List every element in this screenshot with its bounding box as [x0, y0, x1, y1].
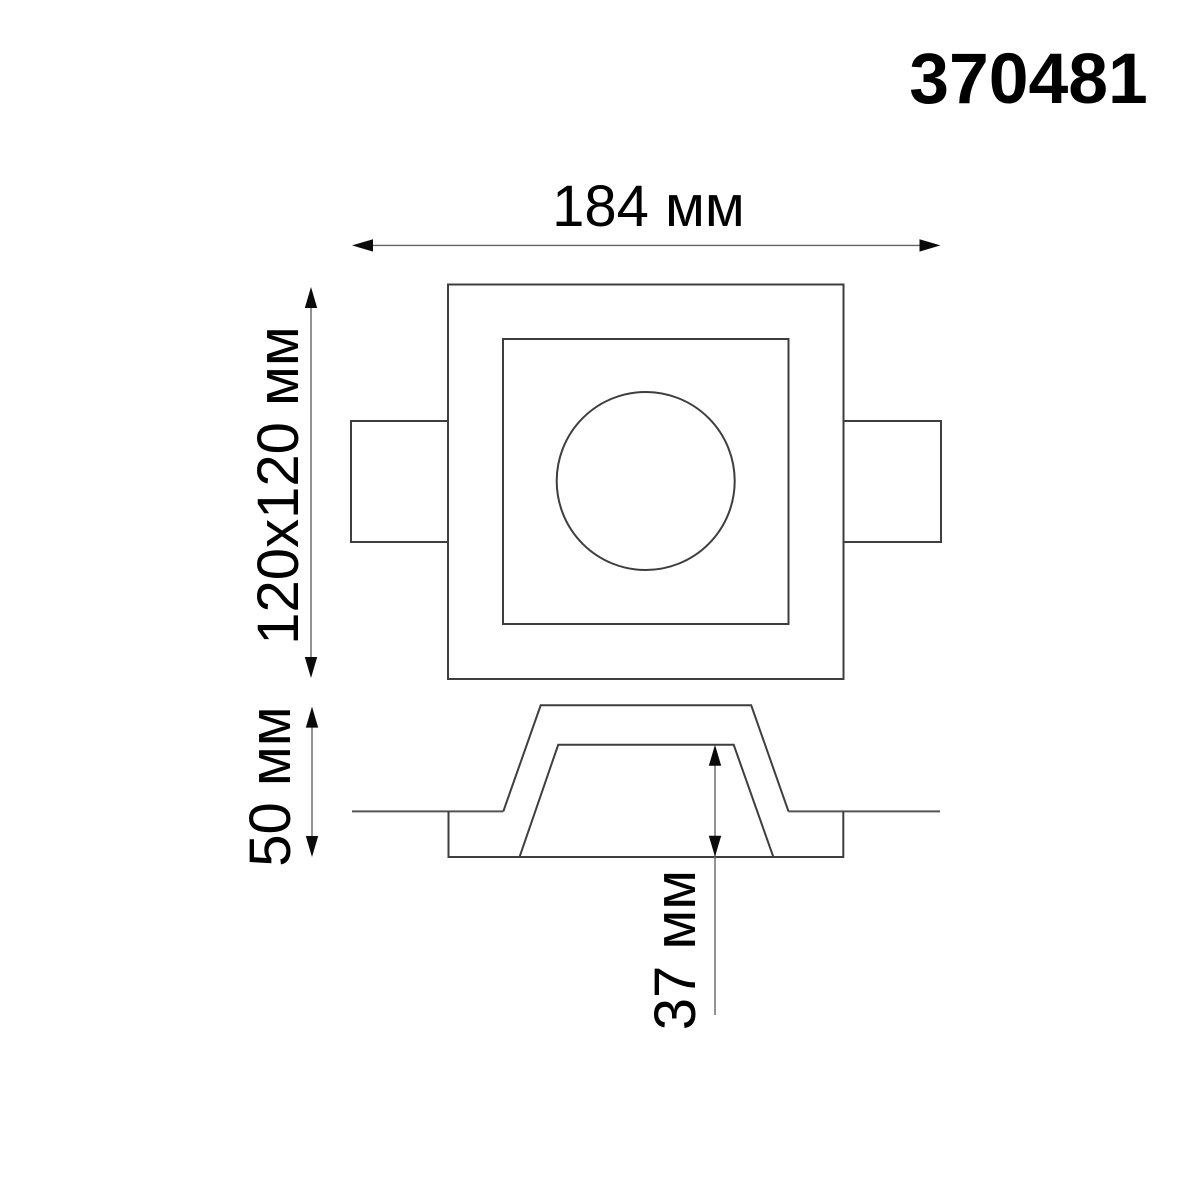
svg-text:50 мм: 50 мм: [238, 706, 303, 866]
svg-text:184 мм: 184 мм: [552, 174, 745, 239]
svg-text:120x120 мм: 120x120 мм: [246, 326, 311, 644]
svg-text:37 мм: 37 мм: [643, 870, 708, 1030]
svg-text:370481: 370481: [909, 39, 1148, 119]
